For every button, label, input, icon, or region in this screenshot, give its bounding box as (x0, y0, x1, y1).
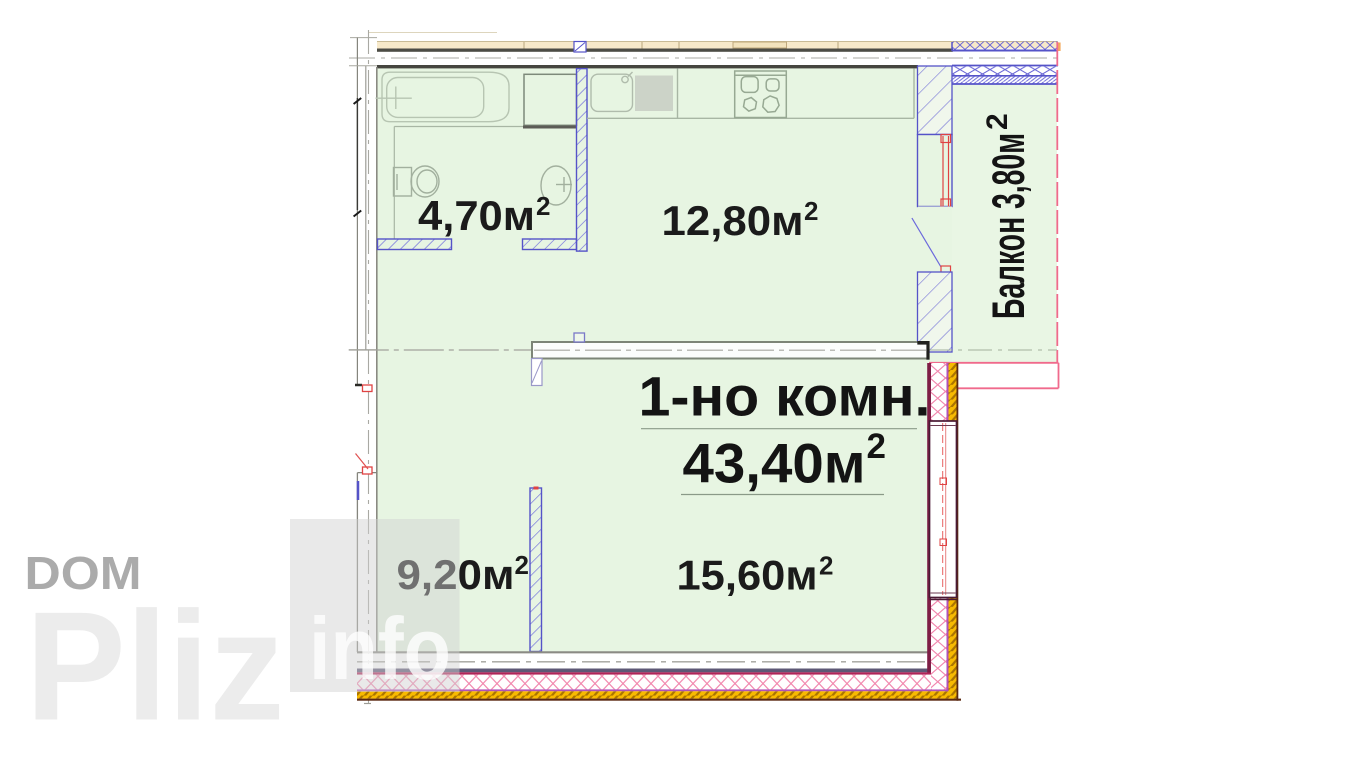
svg-text:Балкон 3,80м: Балкон 3,80м (983, 133, 1034, 319)
svg-text:2: 2 (536, 191, 550, 221)
svg-text:12,80м: 12,80м (662, 197, 804, 244)
svg-text:2: 2 (867, 427, 886, 466)
svg-text:2: 2 (515, 550, 529, 580)
svg-text:1-но комн.: 1-но комн. (639, 365, 931, 428)
svg-text:2: 2 (804, 196, 818, 226)
svg-text:15,60м: 15,60м (677, 552, 818, 599)
svg-text:Pliz: Pliz (26, 580, 285, 753)
svg-text:2: 2 (981, 113, 1014, 130)
svg-text:2: 2 (819, 551, 833, 581)
svg-text:info: info (309, 599, 451, 698)
svg-text:4,70м: 4,70м (418, 192, 535, 239)
svg-text:43,40м: 43,40м (683, 432, 866, 495)
